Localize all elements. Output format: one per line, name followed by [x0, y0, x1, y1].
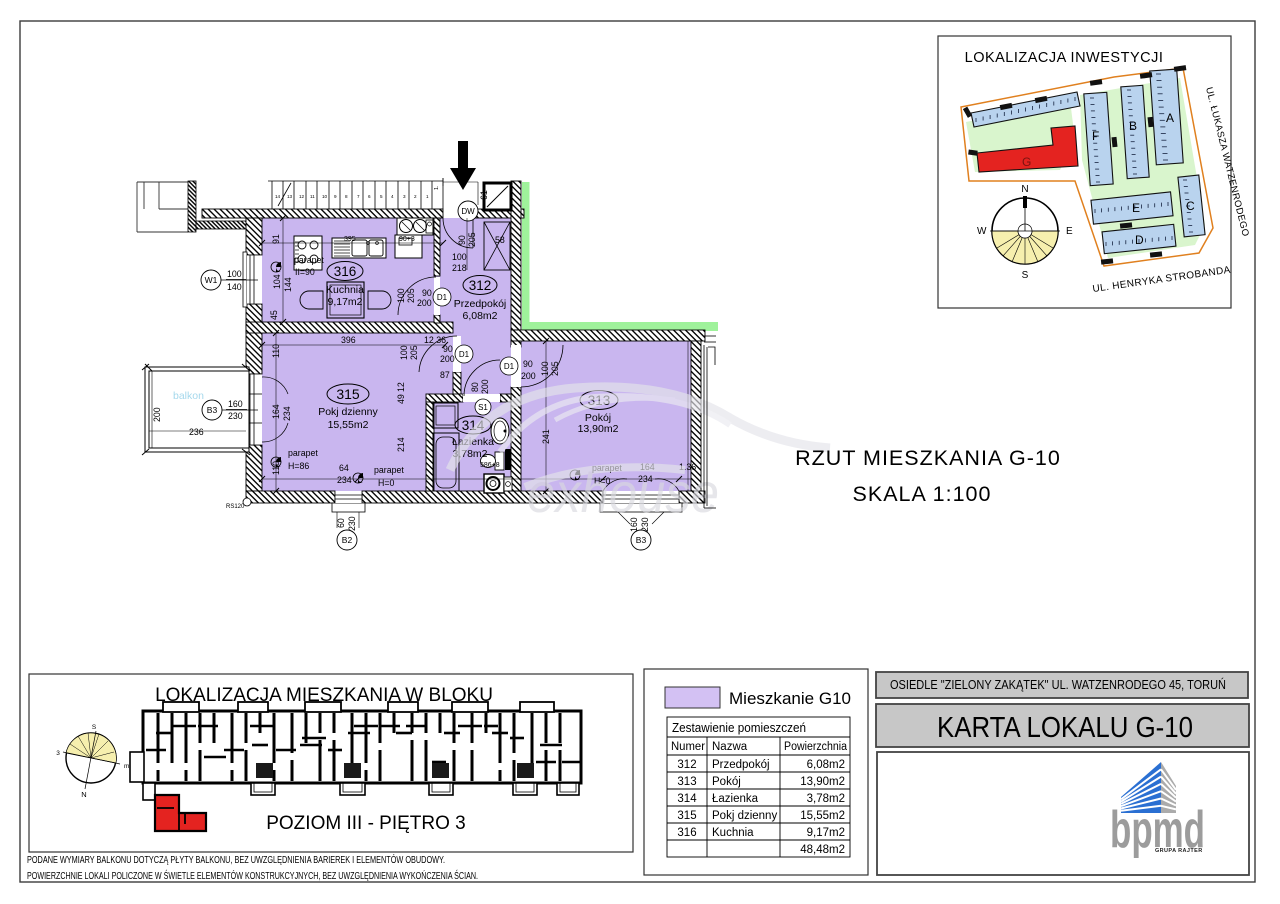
svg-text:234: 234 [337, 475, 352, 485]
svg-text:W: W [977, 226, 987, 237]
svg-text:312: 312 [677, 759, 696, 771]
svg-text:90: 90 [523, 359, 533, 369]
svg-text:586+8: 586+8 [480, 462, 500, 469]
svg-text:316: 316 [334, 264, 357, 279]
svg-text:6,08m2: 6,08m2 [462, 310, 497, 322]
svg-text:10: 10 [322, 194, 328, 199]
svg-text:58: 58 [495, 235, 505, 245]
svg-text:13: 13 [287, 194, 293, 199]
svg-text:13,90m2: 13,90m2 [578, 423, 619, 435]
svg-text:m: m [124, 763, 129, 770]
svg-text:395: 395 [344, 236, 356, 243]
svg-text:D1: D1 [437, 293, 448, 302]
svg-text:parapet: parapet [374, 465, 404, 475]
svg-text:G: G [1022, 155, 1031, 169]
svg-text:exhouse: exhouse [527, 461, 719, 524]
svg-text:90: 90 [457, 235, 467, 245]
svg-text:164: 164 [271, 404, 281, 419]
svg-text:9: 9 [334, 194, 337, 199]
svg-text:2: 2 [414, 194, 417, 199]
svg-text:60: 60 [336, 518, 346, 528]
svg-text:87: 87 [440, 370, 450, 380]
svg-text:1.: 1. [434, 185, 440, 190]
svg-text:61: 61 [479, 190, 489, 200]
svg-text:100: 100 [227, 269, 242, 279]
svg-text:Łazienka: Łazienka [712, 793, 759, 805]
svg-text:S1: S1 [478, 403, 488, 412]
svg-text:N: N [81, 790, 86, 799]
svg-text:Pokj dzienny: Pokj dzienny [318, 406, 378, 418]
svg-text:100: 100 [540, 361, 550, 376]
svg-text:100: 100 [396, 288, 406, 303]
svg-text:90: 90 [443, 344, 453, 354]
svg-text:144: 144 [283, 277, 293, 292]
svg-text:F: F [1092, 129, 1099, 143]
svg-text:3: 3 [56, 750, 60, 757]
svg-text:N: N [1021, 184, 1028, 195]
svg-text:14: 14 [275, 194, 281, 199]
svg-text:S: S [1022, 270, 1029, 281]
svg-text:E: E [1132, 201, 1140, 215]
svg-text:Zestawienie pomieszczeń: Zestawienie pomieszczeń [672, 721, 806, 735]
svg-text:214: 214 [396, 437, 406, 452]
svg-text:Powierzchnia: Powierzchnia [784, 741, 848, 753]
svg-text:48,48m2: 48,48m2 [800, 844, 845, 856]
svg-text:GRUPA RAJTER: GRUPA RAJTER [1155, 848, 1203, 854]
svg-text:140: 140 [227, 282, 242, 292]
svg-text:9,17m2: 9,17m2 [327, 296, 362, 308]
svg-text:312: 312 [469, 278, 492, 293]
svg-text:49: 49 [396, 394, 406, 404]
svg-text:241: 241 [541, 429, 551, 444]
svg-text:H=0: H=0 [378, 478, 394, 488]
svg-text:5: 5 [380, 194, 383, 199]
svg-text:12: 12 [299, 194, 305, 199]
svg-text:8: 8 [345, 194, 348, 199]
svg-text:205: 205 [467, 232, 477, 247]
svg-text:E: E [1066, 226, 1073, 237]
svg-text:Pokj dzienny: Pokj dzienny [712, 810, 777, 822]
svg-text:B3: B3 [207, 405, 218, 415]
svg-text:II=90: II=90 [295, 267, 315, 277]
svg-text:11: 11 [310, 194, 315, 199]
svg-text:314: 314 [677, 793, 697, 805]
svg-text:B2: B2 [342, 535, 353, 545]
svg-text:200: 200 [440, 354, 455, 364]
svg-text:313: 313 [677, 776, 696, 788]
svg-text:218: 218 [452, 263, 467, 273]
svg-text:LOKALIZACJA INWESTYCJI: LOKALIZACJA INWESTYCJI [965, 50, 1164, 66]
svg-text:D1: D1 [504, 362, 515, 371]
svg-text:D1: D1 [459, 350, 470, 359]
svg-text:110: 110 [271, 344, 281, 358]
svg-text:Nazwa: Nazwa [712, 741, 748, 753]
svg-text:parapet: parapet [294, 255, 324, 265]
svg-text:PODANE WYMIARY BALKONU DOTY: PODANE WYMIARY BALKONU DOTYCZĄ PŁYTY BAL… [27, 853, 445, 866]
svg-text:236: 236 [189, 427, 204, 437]
svg-text:RZUT MIESZKANIA G-10: RZUT MIESZKANIA G-10 [795, 446, 1061, 470]
svg-text:100: 100 [399, 345, 409, 360]
svg-text:64: 64 [339, 463, 349, 473]
svg-text:Mieszkanie G10: Mieszkanie G10 [729, 689, 851, 708]
svg-text:205: 205 [409, 345, 419, 360]
svg-text:Pokój: Pokój [712, 776, 741, 788]
svg-text:D: D [1135, 233, 1144, 247]
svg-text:396: 396 [341, 335, 356, 345]
svg-text:90+3: 90+3 [399, 236, 415, 243]
svg-text:230: 230 [228, 411, 243, 421]
svg-text:Przedpokój: Przedpokój [712, 759, 770, 771]
svg-text:234: 234 [282, 406, 292, 421]
svg-text:B: B [1129, 119, 1137, 133]
svg-text:6: 6 [368, 194, 371, 199]
svg-text:Kuchnia: Kuchnia [712, 827, 754, 839]
svg-text:80: 80 [470, 382, 480, 392]
svg-text:15,55m2: 15,55m2 [328, 419, 369, 431]
svg-text:POWIERZCHNIE LOKALI POLICZON: POWIERZCHNIE LOKALI POLICZONE W ŚWIETLE … [27, 869, 478, 882]
svg-text:parapet: parapet [288, 448, 318, 458]
svg-text:315: 315 [336, 386, 360, 402]
svg-text:Przedpokój: Przedpokój [454, 298, 507, 310]
svg-text:6,08m2: 6,08m2 [807, 759, 845, 771]
svg-text:Numer: Numer [671, 741, 705, 753]
svg-text:100: 100 [452, 252, 467, 262]
svg-text:B3: B3 [636, 535, 647, 545]
svg-text:13,90m2: 13,90m2 [800, 776, 845, 788]
svg-text:200: 200 [152, 407, 162, 422]
svg-text:15,55m2: 15,55m2 [800, 810, 845, 822]
svg-text:90: 90 [422, 288, 432, 298]
svg-text:200: 200 [480, 379, 490, 394]
svg-text:balkon: balkon [173, 390, 204, 402]
svg-text:KARTA LOKALU G-10: KARTA LOKALU G-10 [937, 712, 1193, 744]
svg-text:315: 315 [677, 810, 696, 822]
svg-text:S: S [92, 724, 97, 731]
svg-text:45: 45 [269, 310, 279, 320]
svg-text:3: 3 [403, 194, 406, 199]
svg-text:3,78m2: 3,78m2 [807, 793, 845, 805]
svg-text:205: 205 [406, 288, 416, 303]
svg-text:W1: W1 [205, 275, 218, 285]
svg-text:200: 200 [521, 371, 536, 381]
svg-text:91: 91 [271, 234, 281, 244]
svg-text:SKALA 1:100: SKALA 1:100 [853, 482, 992, 506]
svg-text:160: 160 [228, 399, 243, 409]
svg-text:Kuchnia: Kuchnia [326, 284, 364, 296]
svg-text:316: 316 [677, 827, 696, 839]
svg-text:DW: DW [461, 207, 475, 216]
svg-text:4: 4 [391, 194, 394, 199]
svg-text:POZIOM III - PIĘTRO 3: POZIOM III - PIĘTRO 3 [266, 813, 466, 834]
svg-text:H=86: H=86 [288, 461, 309, 471]
svg-text:9,17m2: 9,17m2 [807, 827, 845, 839]
svg-text:205: 205 [550, 361, 560, 376]
svg-text:RS120: RS120 [226, 504, 245, 510]
svg-text:OSIEDLE "ZIELONY ZAKĄTEK" UL.: OSIEDLE "ZIELONY ZAKĄTEK" UL. WATZENRODE… [890, 677, 1226, 692]
svg-text:230: 230 [347, 516, 357, 531]
svg-text:1: 1 [426, 194, 429, 199]
svg-text:A: A [1166, 111, 1174, 125]
svg-text:200: 200 [417, 298, 432, 308]
svg-text:104: 104 [272, 274, 282, 289]
svg-text:7: 7 [357, 194, 360, 199]
svg-text:12: 12 [396, 382, 406, 392]
